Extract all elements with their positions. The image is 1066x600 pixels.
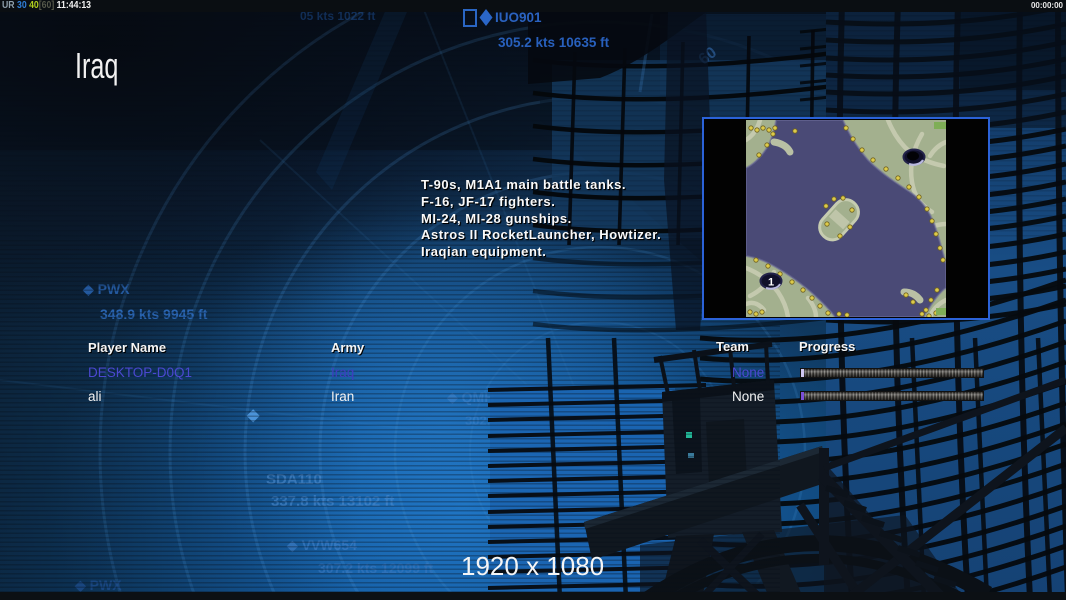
svg-text:305.2 kts 10635 ft: 305.2 kts 10635 ft: [498, 35, 610, 50]
svg-text:1: 1: [768, 277, 774, 289]
svg-text:IUO901: IUO901: [495, 10, 542, 25]
